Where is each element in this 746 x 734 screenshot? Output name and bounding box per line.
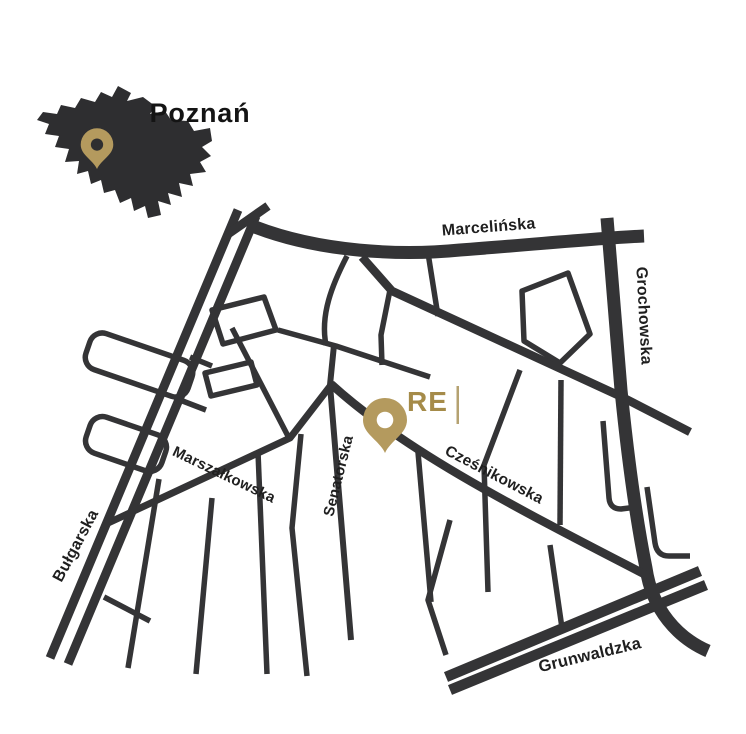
street-line: [196, 498, 212, 674]
street-label-grochowska: Grochowska: [632, 266, 654, 365]
street-label-marcelinska: Marcelińska: [441, 215, 536, 239]
city-inset: Poznań: [37, 86, 250, 218]
street-line: [647, 487, 690, 556]
street-line: [550, 545, 562, 628]
street-line: [232, 328, 290, 440]
street-label-grunwaldzka: Grunwaldzka: [537, 634, 644, 676]
street-label-senatorska: Senatorska: [320, 433, 357, 518]
street-line: [418, 452, 431, 602]
location-pin-icon: [363, 398, 407, 453]
road-bulgarska-west: [50, 210, 238, 658]
street-line: [180, 400, 206, 410]
block-loop: [522, 273, 590, 363]
marker-logo-divider: [457, 386, 460, 424]
road-network: [50, 206, 708, 690]
street-line: [104, 597, 150, 621]
map-canvas: Poznań: [0, 0, 746, 734]
street-line: [560, 380, 561, 525]
location-map: Poznań: [0, 0, 746, 734]
marker-logo-text: RE: [407, 386, 448, 417]
street-line: [381, 290, 390, 365]
road-grunwaldzka-south: [450, 585, 706, 690]
city-label: Poznań: [150, 98, 251, 128]
street-line: [324, 256, 347, 345]
street-line: [428, 520, 450, 655]
street-line: [278, 330, 430, 377]
street-line: [292, 434, 307, 676]
